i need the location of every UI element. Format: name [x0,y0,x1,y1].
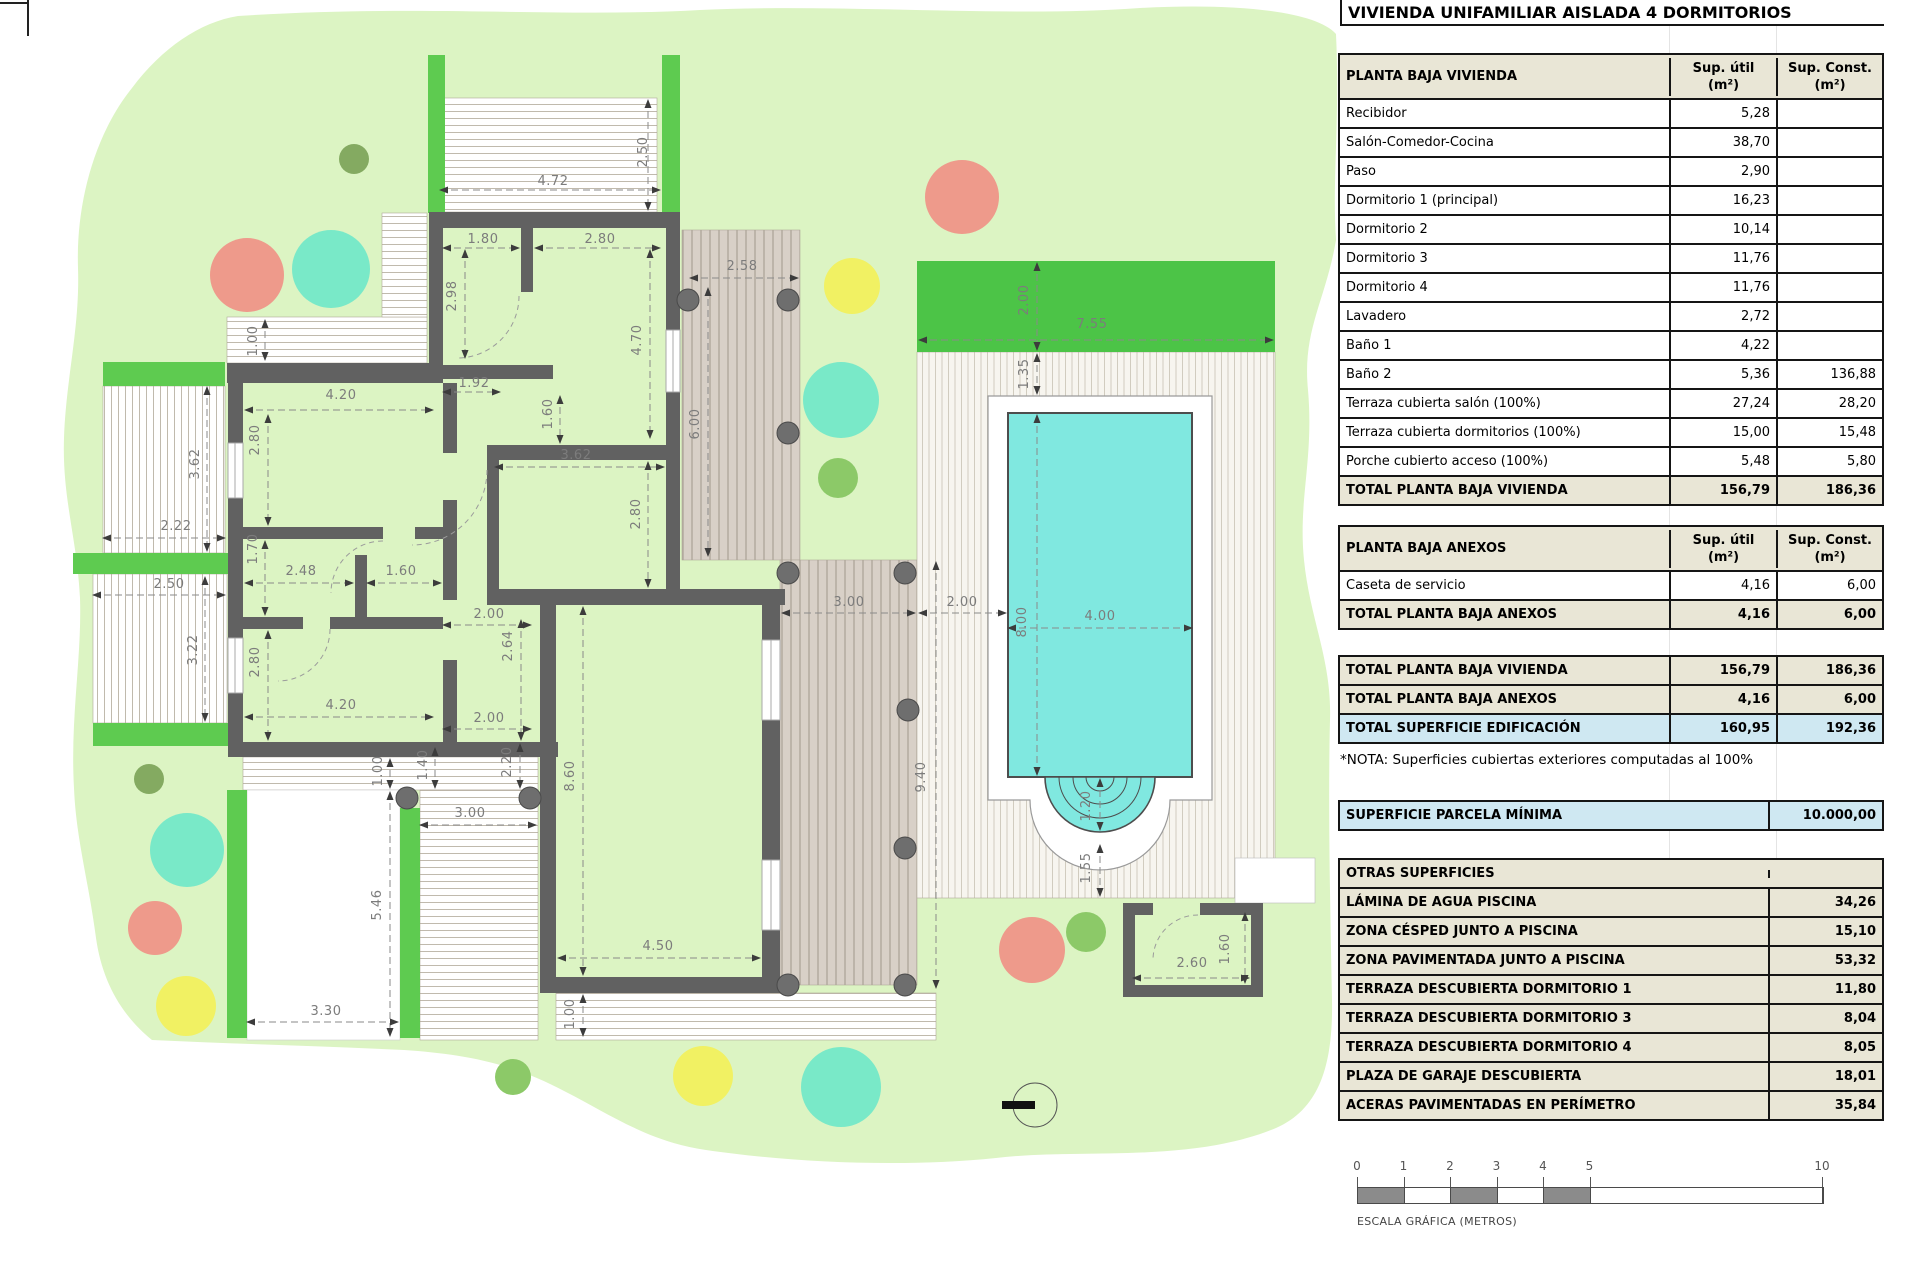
table-row: Dormitorio 311,76 [1340,243,1882,272]
scale-tick-label: 3 [1487,1159,1507,1173]
sup-const-value: 28,20 [1776,390,1882,417]
dimension-label: 9.40 [914,762,929,793]
dimension-label: 3.00 [455,806,486,821]
sup-util-value: 5,48 [1669,448,1776,475]
sup-const-value: 186,36 [1776,477,1882,504]
scale-segment [1358,1188,1405,1203]
table-otras-superficies: OTRAS SUPERFICIES LÁMINA DE AGUA PISCINA… [1338,858,1884,1121]
scale-tick [1404,1177,1405,1187]
tree-yellow [824,258,880,314]
dimension-label: 4.00 [1085,609,1116,624]
dimension-label: 7.55 [1077,317,1108,332]
tree-salmon [128,901,182,955]
row-label: TERRAZA DESCUBIERTA DORMITORIO 4 [1340,1034,1768,1061]
scale-tick-label: 0 [1347,1159,1367,1173]
tree-teal [801,1047,881,1127]
sup-util-value: 156,79 [1669,477,1776,504]
scale-caption: ESCALA GRÁFICA (METROS) [1357,1215,1517,1228]
architectural-drawing-sheet: 4.722.501.802.802.984.701.922.586.001.60… [0,0,1920,1280]
dimension-label: 2.48 [286,564,317,579]
dimension-label: 2.00 [474,711,505,726]
scale-tick-label: 10 [1812,1159,1832,1173]
table-row: Terraza cubierta dormitorios (100%)15,00… [1340,417,1882,446]
post [777,422,799,444]
row-value: 53,32 [1768,947,1882,974]
table-row: Terraza cubierta salón (100%)27,2428,20 [1340,388,1882,417]
hedge [400,808,420,1038]
dimension-label: 2.00 [1017,285,1032,316]
sup-util-value: 4,16 [1669,686,1776,713]
row-label: Terraza cubierta dormitorios (100%) [1340,419,1669,446]
note-text: *NOTA: Superficies cubiertas exteriores … [1340,752,1753,768]
post [777,562,799,584]
dimension-label: 2.98 [445,281,460,312]
sup-util-value: 16,23 [1669,187,1776,214]
table-row: Paso2,90 [1340,156,1882,185]
dimension-label: 5.46 [370,890,385,921]
post [894,837,916,859]
row-label: ACERAS PAVIMENTADAS EN PERÍMETRO [1340,1092,1768,1119]
scale-tick [1822,1177,1823,1187]
sup-const-value [1776,332,1882,359]
table-header-row: PLANTA BAJA VIVIENDA Sup. útil(m²) Sup. … [1340,55,1882,98]
tree-teal [292,230,370,308]
row-label: TOTAL PLANTA BAJA VIVIENDA [1340,477,1669,504]
table-header-row: PLANTA BAJA ANEXOS Sup. útil(m²) Sup. Co… [1340,527,1882,570]
sup-util-value: 5,28 [1669,100,1776,127]
sup-util-value: 156,79 [1669,657,1776,684]
hedge [103,362,225,386]
dimension-label: 3.00 [834,595,865,610]
corner-mark-icon [0,0,28,36]
dimension-label: 2.22 [161,519,192,534]
scale-segment [1591,1188,1824,1203]
tree-green [495,1059,531,1095]
tree-green [1066,912,1106,952]
dimension-label: 3.30 [311,1004,342,1019]
hedge [662,55,680,213]
scale-tick-label: 1 [1394,1159,1414,1173]
tree-salmon [999,917,1065,983]
scale-tick-label: 4 [1533,1159,1553,1173]
table-row: SUPERFICIE PARCELA MÍNIMA 10.000,00 [1340,802,1882,829]
scale-bar [1357,1187,1824,1204]
col-sup-const: Sup. Const.(m²) [1776,530,1882,568]
deck-walkway-v [382,213,427,317]
dimension-label: 2.58 [727,259,758,274]
row-value: 18,01 [1768,1063,1882,1090]
zona-cesped-piscina [917,261,1275,352]
row-label: Salón-Comedor-Cocina [1340,129,1669,156]
sup-const-value [1776,274,1882,301]
scale-segment [1405,1188,1452,1203]
row-label: Caseta de servicio [1340,572,1669,599]
dimension-label: 2.80 [248,647,263,678]
table-row: Caseta de servicio4,166,00 [1340,570,1882,599]
sup-util-value: 2,90 [1669,158,1776,185]
table-header-row: OTRAS SUPERFICIES [1340,860,1882,887]
col-sup-const: Sup. Const.(m²) [1776,58,1882,96]
row-label: Porche cubierto acceso (100%) [1340,448,1669,475]
dimension-label: 2.80 [585,232,616,247]
tree-yellow [673,1046,733,1106]
row-value: 11,80 [1768,976,1882,1003]
row-label: Dormitorio 4 [1340,274,1669,301]
table-row: Recibidor5,28 [1340,98,1882,127]
dimension-label: 4.20 [326,698,357,713]
sup-const-value: 5,80 [1776,448,1882,475]
sup-const-value [1776,187,1882,214]
sup-util-value: 27,24 [1669,390,1776,417]
aceras-perimetro [556,993,936,1040]
dimension-label: 4.72 [538,174,569,189]
table-row: Dormitorio 1 (principal)16,23 [1340,185,1882,214]
tree-olive [134,764,164,794]
sup-const-value: 192,36 [1776,715,1882,742]
table-row: Baño 14,22 [1340,330,1882,359]
parcela-label: SUPERFICIE PARCELA MÍNIMA [1340,802,1768,829]
dimension-label: 1.35 [1017,359,1032,390]
sup-util-value: 4,16 [1669,572,1776,599]
sup-util-value: 5,36 [1669,361,1776,388]
row-label: LÁMINA DE AGUA PISCINA [1340,889,1768,916]
drawing-title: VIVIENDA UNIFAMILIAR AISLADA 4 DORMITORI… [1340,0,1884,26]
dimension-label: 1.80 [468,232,499,247]
terraza-cubierta-salon [780,560,917,985]
row-value: 8,05 [1768,1034,1882,1061]
parcela-value: 10.000,00 [1768,802,1882,829]
sup-util-value: 4,22 [1669,332,1776,359]
hedge [73,553,228,574]
tree-salmon [925,160,999,234]
sup-const-value [1776,303,1882,330]
table-title: OTRAS SUPERFICIES [1340,860,1768,887]
row-label: TERRAZA DESCUBIERTA DORMITORIO 3 [1340,1005,1768,1032]
scale-tick [1543,1177,1544,1187]
sup-util-value: 10,14 [1669,216,1776,243]
table-row: TOTAL PLANTA BAJA VIVIENDA156,79186,36 [1340,657,1882,684]
table-row: TOTAL PLANTA BAJA VIVIENDA156,79186,36 [1340,475,1882,504]
tree-olive [339,144,369,174]
hedge [428,55,445,213]
terraza-cubierta-dormitorios [682,230,800,560]
dimension-label: 6.00 [688,409,703,440]
dimension-label: 2.00 [474,607,505,622]
table-row: PLAZA DE GARAJE DESCUBIERTA18,01 [1340,1061,1882,1090]
row-value: 34,26 [1768,889,1882,916]
table-row: ACERAS PAVIMENTADAS EN PERÍMETRO35,84 [1340,1090,1882,1119]
row-label: Baño 1 [1340,332,1669,359]
scale-tick [1357,1177,1358,1187]
dimension-label: 4.50 [643,939,674,954]
sup-util-value: 11,76 [1669,245,1776,272]
scale-segment [1451,1188,1498,1203]
row-label: Dormitorio 2 [1340,216,1669,243]
row-label: ZONA PAVIMENTADA JUNTO A PISCINA [1340,947,1768,974]
post [777,974,799,996]
table-row: Baño 25,36136,88 [1340,359,1882,388]
row-label: TOTAL PLANTA BAJA ANEXOS [1340,601,1669,628]
dimension-label: 1.20 [1079,791,1094,822]
deck-entrance-top [443,98,657,212]
row-value: 35,84 [1768,1092,1882,1119]
scale-tick-label: 5 [1580,1159,1600,1173]
row-label: Dormitorio 3 [1340,245,1669,272]
table-row: Lavadero2,72 [1340,301,1882,330]
table-row: TOTAL SUPERFICIE EDIFICACIÓN160,95192,36 [1340,713,1882,742]
scale-segment [1544,1188,1591,1203]
row-label: Terraza cubierta salón (100%) [1340,390,1669,417]
row-label: Paso [1340,158,1669,185]
table-planta-baja-vivienda: PLANTA BAJA VIVIENDA Sup. útil(m²) Sup. … [1338,53,1884,506]
dimension-label: 2.20 [500,747,515,778]
sup-util-value: 38,70 [1669,129,1776,156]
table-row: LÁMINA DE AGUA PISCINA34,26 [1340,887,1882,916]
sup-const-value: 15,48 [1776,419,1882,446]
terrace-dormitorio-3 [93,574,227,723]
table-totales: TOTAL PLANTA BAJA VIVIENDA156,79186,36TO… [1338,655,1884,744]
sup-util-value: 15,00 [1669,419,1776,446]
tree-salmon [210,238,284,312]
post [519,787,541,809]
tree-teal [150,813,224,887]
col-sup-util: Sup. útil(m²) [1669,530,1776,568]
row-label: Lavadero [1340,303,1669,330]
dimension-label: 2.64 [501,631,516,662]
dimension-label: 8.00 [1015,607,1030,638]
sup-const-value [1776,216,1882,243]
scale-segment [1498,1188,1545,1203]
scale-tick [1450,1177,1451,1187]
sup-util-value: 4,16 [1669,601,1776,628]
dimension-label: 8.60 [563,761,578,792]
table-planta-baja-anexos: PLANTA BAJA ANEXOS Sup. útil(m²) Sup. Co… [1338,525,1884,630]
sup-const-value: 136,88 [1776,361,1882,388]
dimension-label: 1.00 [371,756,386,787]
tree-teal [803,362,879,438]
row-label: TOTAL SUPERFICIE EDIFICACIÓN [1340,715,1669,742]
sup-const-value [1776,158,1882,185]
table-title: PLANTA BAJA VIVIENDA [1340,63,1669,90]
table-row: ZONA CÉSPED JUNTO A PISCINA15,10 [1340,916,1882,945]
table-row: Porche cubierto acceso (100%)5,485,80 [1340,446,1882,475]
dimension-label: 4.70 [630,325,645,356]
row-label: TOTAL PLANTA BAJA ANEXOS [1340,686,1669,713]
dimension-label: 2.50 [636,137,651,168]
table-row: TERRAZA DESCUBIERTA DORMITORIO 111,80 [1340,974,1882,1003]
post [894,562,916,584]
scale-tick-label: 2 [1440,1159,1460,1173]
dimension-label: 2.00 [947,595,978,610]
dimension-label: 1.00 [563,999,578,1030]
tree-yellow [156,976,216,1036]
hedge [227,790,247,1038]
surface-tables-panel: VIVIENDA UNIFAMILIAR AISLADA 4 DORMITORI… [1338,0,1886,1280]
table-row: TOTAL PLANTA BAJA ANEXOS4,166,00 [1340,599,1882,628]
post [777,289,799,311]
row-label: ZONA CÉSPED JUNTO A PISCINA [1340,918,1768,945]
sup-util-value: 2,72 [1669,303,1776,330]
dimension-label: 3.22 [186,635,201,666]
post [677,289,699,311]
dimension-label: 1.40 [416,750,431,781]
table-row: TERRAZA DESCUBIERTA DORMITORIO 48,05 [1340,1032,1882,1061]
sup-const-value: 6,00 [1776,686,1882,713]
scale-tick [1497,1177,1498,1187]
sup-util-value: 11,76 [1669,274,1776,301]
dimension-label: 2.50 [154,577,185,592]
dimension-label: 3.62 [188,449,203,480]
dimension-label: 2.80 [629,499,644,530]
sup-const-value: 6,00 [1776,572,1882,599]
pool-water [1008,413,1192,777]
post [396,787,418,809]
tree-green [818,458,858,498]
dimension-label: 1.00 [246,326,261,357]
dimension-label: 2.80 [248,425,263,456]
dimension-label: 1.60 [386,564,417,579]
table-title: PLANTA BAJA ANEXOS [1340,535,1669,562]
table-row: Dormitorio 411,76 [1340,272,1882,301]
row-label: Dormitorio 1 (principal) [1340,187,1669,214]
sup-const-value [1776,129,1882,156]
site-plan: 4.722.501.802.802.984.701.922.586.001.60… [0,0,1338,1280]
sup-const-value [1776,100,1882,127]
sup-const-value: 186,36 [1776,657,1882,684]
row-label: Recibidor [1340,100,1669,127]
deck-porche [420,790,538,1040]
row-value: 15,10 [1768,918,1882,945]
table-row: TERRAZA DESCUBIERTA DORMITORIO 38,04 [1340,1003,1882,1032]
row-label: TOTAL PLANTA BAJA VIVIENDA [1340,657,1669,684]
empty-header-cell [1768,870,1882,878]
row-label: TERRAZA DESCUBIERTA DORMITORIO 1 [1340,976,1768,1003]
pad-white [1235,858,1315,903]
dimension-label: 1.70 [246,534,261,565]
row-value: 8,04 [1768,1005,1882,1032]
sup-const-value: 6,00 [1776,601,1882,628]
graphic-scale: 01234510 ESCALA GRÁFICA (METROS) [1338,1155,1884,1245]
post [894,974,916,996]
table-row: Salón-Comedor-Cocina38,70 [1340,127,1882,156]
dimension-label: 1.92 [459,376,490,391]
row-label: PLAZA DE GARAJE DESCUBIERTA [1340,1063,1768,1090]
table-superficie-parcela: SUPERFICIE PARCELA MÍNIMA 10.000,00 [1338,800,1884,831]
hedge [93,723,228,746]
dimension-label: 2.60 [1177,956,1208,971]
table-row: Dormitorio 210,14 [1340,214,1882,243]
dimension-label: 1.60 [1218,934,1233,965]
post [897,699,919,721]
dimension-label: 4.20 [326,388,357,403]
sup-util-value: 160,95 [1669,715,1776,742]
dimension-label: 1.55 [1079,853,1094,884]
dimension-label: 3.62 [561,448,592,463]
table-row: TOTAL PLANTA BAJA ANEXOS4,166,00 [1340,684,1882,713]
scale-tick [1590,1177,1591,1187]
row-label: Baño 2 [1340,361,1669,388]
dimension-label: 1.60 [541,399,556,430]
sup-const-value [1776,245,1882,272]
table-row: ZONA PAVIMENTADA JUNTO A PISCINA53,32 [1340,945,1882,974]
col-sup-util: Sup. útil(m²) [1669,58,1776,96]
